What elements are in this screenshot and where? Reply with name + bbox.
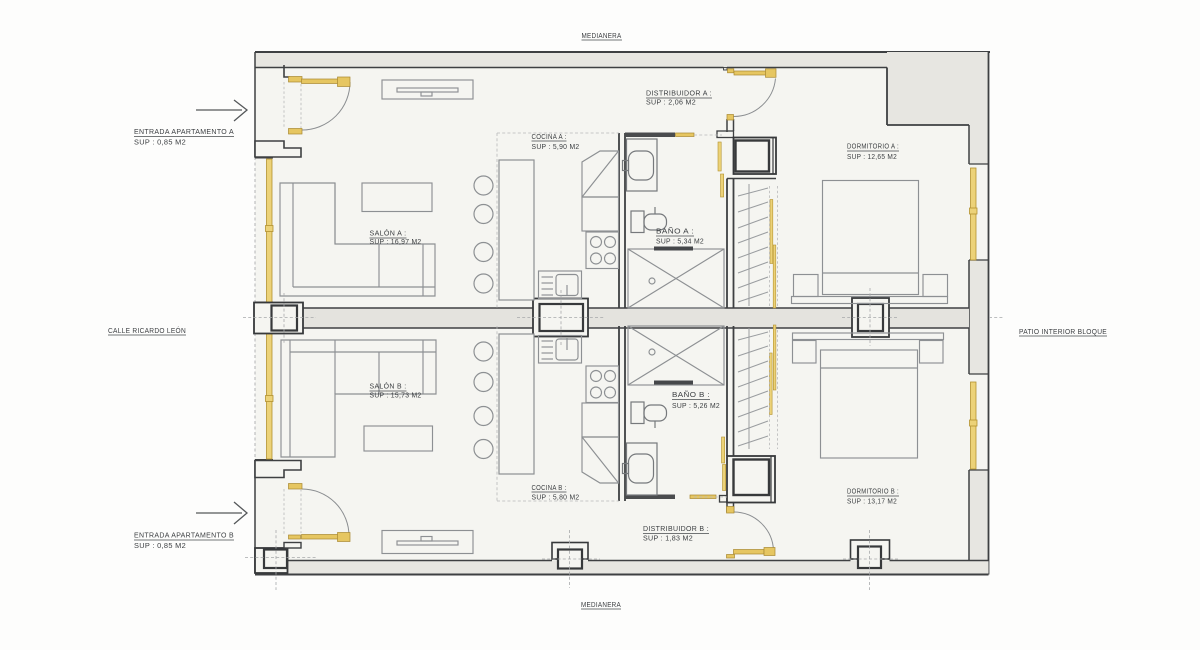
svg-text:SALÓN A :: SALÓN A : <box>370 229 407 238</box>
svg-text:SUP : 2,06 M2: SUP : 2,06 M2 <box>646 100 696 107</box>
svg-text:DORMITORIO A :: DORMITORIO A : <box>847 142 899 151</box>
svg-text:DISTRIBUIDOR B :: DISTRIBUIDOR B : <box>643 524 709 533</box>
svg-text:ENTRADA APARTAMENTO B: ENTRADA APARTAMENTO B <box>134 531 234 540</box>
svg-text:SUP : 16,97 M2: SUP : 16,97 M2 <box>370 239 422 246</box>
svg-text:BAÑO A :: BAÑO A : <box>656 227 694 236</box>
svg-text:DISTRIBUIDOR A :: DISTRIBUIDOR A : <box>646 89 712 98</box>
svg-text:SUP : 5,34 M2: SUP : 5,34 M2 <box>656 239 704 246</box>
svg-text:SUP : 0,85 M2: SUP : 0,85 M2 <box>134 140 186 147</box>
svg-text:SUP : 13,17 M2: SUP : 13,17 M2 <box>847 499 897 506</box>
svg-text:SUP : 5,80 M2: SUP : 5,80 M2 <box>532 495 580 502</box>
svg-text:CALLE RICARDO LEÓN: CALLE RICARDO LEÓN <box>108 326 186 335</box>
svg-text:SUP : 1,83 M2: SUP : 1,83 M2 <box>643 536 693 543</box>
svg-text:MEDIANERA: MEDIANERA <box>581 602 621 609</box>
svg-text:SUP : 5,90 M2: SUP : 5,90 M2 <box>532 144 580 151</box>
svg-text:COCINA B :: COCINA B : <box>532 483 567 492</box>
svg-text:PATIO INTERIOR BLOQUE: PATIO INTERIOR BLOQUE <box>1019 329 1107 336</box>
svg-text:DORMITORIO B :: DORMITORIO B : <box>847 487 899 496</box>
svg-text:SUP : 12,65 M2: SUP : 12,65 M2 <box>847 154 897 161</box>
svg-text:ENTRADA APARTAMENTO A: ENTRADA APARTAMENTO A <box>134 127 234 136</box>
svg-text:SALÓN B :: SALÓN B : <box>370 382 407 391</box>
svg-text:COCINA A :: COCINA A : <box>532 132 567 141</box>
svg-text:MEDIANERA: MEDIANERA <box>582 33 622 40</box>
svg-text:SUP : 15,73 M2: SUP : 15,73 M2 <box>370 393 422 400</box>
svg-text:BAÑO B :: BAÑO B : <box>672 390 710 399</box>
svg-text:SUP : 0,85 M2: SUP : 0,85 M2 <box>134 543 186 550</box>
svg-text:SUP : 5,26 M2: SUP : 5,26 M2 <box>672 403 720 410</box>
